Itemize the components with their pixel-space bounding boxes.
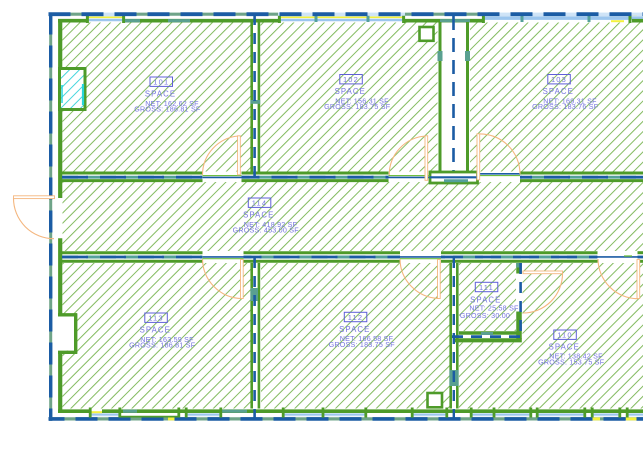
svg-text:102: 102 xyxy=(343,75,359,84)
svg-text:114: 114 xyxy=(252,199,268,208)
svg-text:GROSS: 183.75 SF: GROSS: 183.75 SF xyxy=(329,341,396,349)
svg-text:101: 101 xyxy=(153,78,169,87)
svg-text:SPACE: SPACE xyxy=(145,90,176,99)
svg-text:111: 111 xyxy=(479,283,494,292)
svg-text:GROSS: 30.00: GROSS: 30.00 xyxy=(460,312,510,320)
svg-text:112: 112 xyxy=(348,313,364,322)
svg-text:SPACE: SPACE xyxy=(339,325,370,334)
svg-text:GROSS: 183.75 SF: GROSS: 183.75 SF xyxy=(324,103,391,111)
svg-text:GROSS: 186.81 SF: GROSS: 186.81 SF xyxy=(129,342,196,350)
svg-text:SPACE: SPACE xyxy=(543,87,574,96)
svg-text:113: 113 xyxy=(148,314,164,323)
svg-text:SPACE: SPACE xyxy=(335,87,366,96)
svg-text:SPACE: SPACE xyxy=(140,326,171,335)
svg-text:110: 110 xyxy=(557,331,573,340)
svg-text:SPACE: SPACE xyxy=(549,343,580,352)
svg-text:GROSS: 186.81 SF: GROSS: 186.81 SF xyxy=(134,106,201,114)
svg-text:SPACE: SPACE xyxy=(470,295,501,304)
svg-text:SPACE: SPACE xyxy=(243,211,274,220)
svg-text:GROSS: 153.75 SF: GROSS: 153.75 SF xyxy=(538,359,605,367)
svg-text:103: 103 xyxy=(551,75,567,84)
svg-text:GROSS: 183.76 SF: GROSS: 183.76 SF xyxy=(532,103,599,111)
svg-text:GROSS: 453.00 SF: GROSS: 453.00 SF xyxy=(233,227,300,235)
